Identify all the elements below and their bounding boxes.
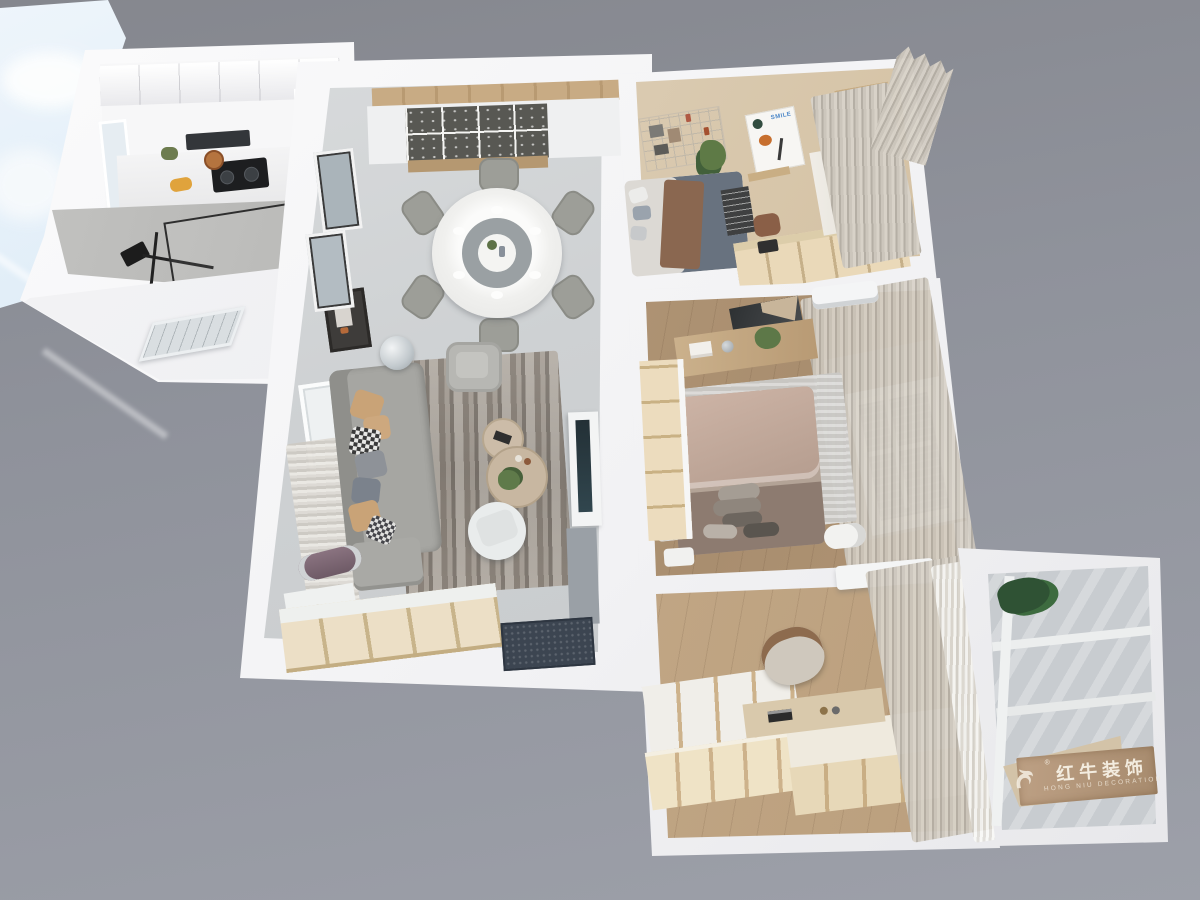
desk-decor <box>819 706 828 715</box>
burner <box>219 170 234 185</box>
poster-title: SMILE <box>770 111 792 121</box>
bed-pillow <box>632 205 651 221</box>
book <box>493 430 512 444</box>
registered-mark: ® <box>1044 759 1050 766</box>
clip-marker <box>685 114 691 123</box>
dining-chair <box>479 158 519 192</box>
decor-orb <box>721 340 735 354</box>
herb-plant <box>161 147 178 160</box>
place-setting <box>529 227 541 235</box>
laptop <box>757 239 779 254</box>
clip-marker <box>703 127 709 136</box>
art-accent <box>340 327 349 334</box>
books-stack <box>689 341 712 356</box>
place-setting <box>453 227 465 235</box>
bed-pillow <box>628 186 649 205</box>
lazy-susan <box>478 234 516 272</box>
place-setting <box>529 271 541 279</box>
desk-decor <box>831 706 840 715</box>
swivel-chair-cushion <box>474 507 520 548</box>
coffee-cup <box>524 458 531 465</box>
shelf-plant <box>753 325 782 350</box>
armchair-cushion <box>456 352 488 378</box>
entry-accent-wall <box>566 528 599 625</box>
place-setting <box>491 206 503 214</box>
place-setting <box>491 291 503 299</box>
table-bottle <box>499 246 505 257</box>
place-setting <box>453 271 465 279</box>
table-plant <box>487 240 497 250</box>
swivel-chair <box>468 502 526 560</box>
bed-throw-blanket <box>660 179 705 269</box>
armchair <box>446 342 502 392</box>
poster-pumpkin-graphic <box>758 134 773 147</box>
coffee-cup <box>515 455 522 462</box>
apartment-3d-render: SMILE <box>0 0 1200 900</box>
pinned-photo <box>649 124 665 138</box>
master-wardrobe <box>639 359 692 541</box>
china-display-cabinet <box>405 104 549 163</box>
bull-logo-icon <box>1011 766 1037 797</box>
pillow <box>703 524 737 539</box>
sofa-ottoman <box>350 536 425 591</box>
pinned-photo <box>654 143 669 155</box>
doormat <box>500 617 595 671</box>
bed-pillow <box>630 226 647 241</box>
burner <box>243 166 259 182</box>
hanging-vine-plant <box>700 140 726 170</box>
desk-book <box>767 709 792 723</box>
pinned-photo <box>667 127 681 143</box>
floor-lamp-globe <box>380 336 414 370</box>
desk-chair-small <box>752 212 781 238</box>
nightstand <box>663 547 694 567</box>
poster-circle-graphic <box>752 118 764 130</box>
nesting-coffee-table-large <box>486 446 548 508</box>
potted-plant <box>498 470 520 490</box>
copper-pot <box>204 150 224 170</box>
poster-sketch <box>778 138 784 160</box>
